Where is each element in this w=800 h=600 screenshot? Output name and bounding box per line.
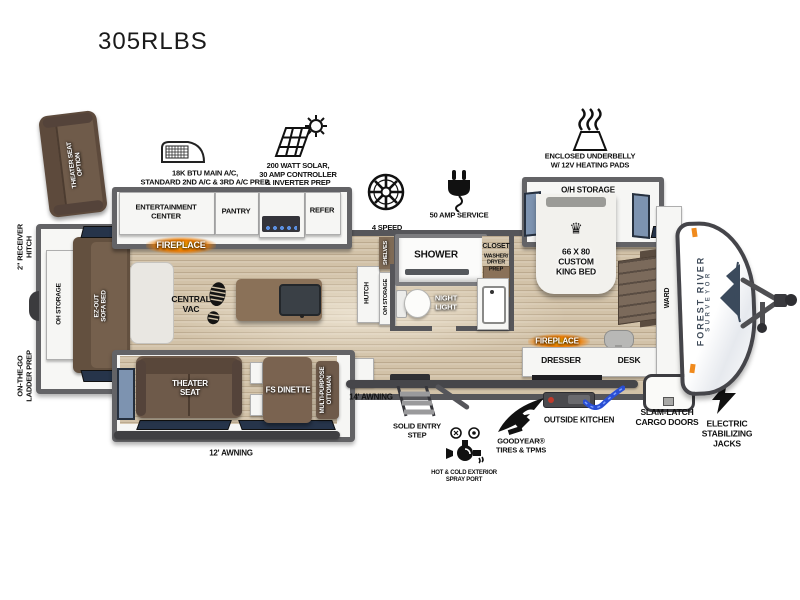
fs-dinette-label: FS DINETTE — [266, 385, 311, 394]
stab-jacks-label: ELECTRIC STABILIZING JACKS — [702, 419, 753, 448]
refer-label: REFER — [310, 207, 334, 216]
closet-sub-label: WASHER/ DRYER PREP — [484, 254, 508, 273]
floorplan-canvas: 305RLBS THEATER SEAT OPTION 18K BTU MAIN… — [0, 0, 800, 600]
night-light-label: NIGHT LIGHT — [435, 294, 457, 311]
dinette-bench-2 — [250, 394, 263, 416]
slam-latch-label: SLAM-LATCH CARGO DOORS — [636, 408, 699, 428]
main-ac-label: 18K BTU MAIN A/C, STANDARD 2ND A/C & 3RD… — [141, 169, 270, 186]
king-bed — [536, 194, 616, 294]
dinette-bench-1 — [250, 362, 263, 384]
awning-12-label: 12' AWNING — [209, 448, 253, 457]
theater-seat-back — [139, 358, 239, 374]
cooktop-knobs — [265, 226, 297, 230]
bath-wall-bottom-a — [390, 326, 432, 331]
pulled-out-bed — [130, 262, 174, 344]
rear-oh-storage-label: OH STORAGE — [55, 254, 62, 354]
cooktop — [262, 216, 300, 232]
brand-forest-river: FOREST RIVER — [695, 241, 705, 361]
dresser-label: DRESSER — [541, 356, 581, 366]
vanity-faucet — [490, 290, 494, 294]
entertainment-center-label: ENTERTAINMENT CENTER — [135, 203, 196, 220]
theater-seat-label: THEATER SEAT — [172, 379, 208, 397]
theater-seat-option-sofa: THEATER SEAT OPTION — [38, 110, 108, 218]
ottoman-label: MULTI-PURPOSE OTTOMAN — [320, 358, 334, 422]
shower-drain-strip — [405, 269, 469, 275]
theater-seat-arm-right — [232, 360, 242, 416]
crown-icon: ♛ — [569, 220, 582, 237]
slam-latch-handle — [663, 397, 674, 406]
mountain-logo — [716, 260, 742, 324]
king-bed-label: 66 X 80 CUSTOM KING BED — [556, 247, 596, 276]
awning-14-label: 14' AWNING — [349, 392, 393, 401]
ac-unit-icon — [158, 138, 208, 166]
page-title: 305RLBS — [98, 28, 208, 56]
underbelly-label: ENCLOSED UNDERBELLY W/ 12V HEATING PADS — [545, 152, 636, 169]
theater-seat-arm-left — [136, 360, 146, 416]
ez-out-sofa-bed-label: EZ-OUT SOFA BED — [94, 261, 109, 351]
awning-12-bar — [114, 431, 340, 439]
slide-window-left — [117, 368, 135, 420]
fireplace-living-label: FIREPLACE — [156, 240, 205, 250]
bed-headboard — [546, 197, 606, 207]
shelves-label: SHELVES — [383, 233, 389, 273]
brand-surveyor: SURVEYOR — [706, 241, 713, 361]
pantry-label: PANTRY — [222, 208, 251, 217]
hutch-label: HUTCH — [363, 268, 370, 318]
bath-fan-icon — [366, 172, 406, 212]
toilet-bowl — [404, 289, 431, 318]
vanity-sink — [482, 286, 506, 324]
outside-kitchen-hose — [583, 380, 625, 410]
outside-kitchen-burner — [548, 397, 554, 403]
island-sink — [279, 284, 321, 316]
solar-label: 200 WATT SOLAR, 30 AMP CONTROLLER & INVE… — [259, 162, 336, 188]
entry-step-label: SOLID ENTRY STEP — [393, 422, 441, 439]
fireplace-bed-label: FIREPLACE — [535, 336, 579, 345]
cap-marker-light-top — [691, 228, 697, 238]
brand-text-block: FOREST RIVER SURVEYOR — [695, 241, 712, 361]
shower-label: SHOWER — [414, 249, 458, 261]
ward-label: WARD — [664, 268, 672, 328]
heat-waves-icon — [566, 108, 614, 152]
desk-label: DESK — [618, 356, 641, 366]
entry-step-icon — [392, 386, 438, 418]
amp-service-label: 50 AMP SERVICE — [430, 212, 489, 221]
goodyear-wingfoot-icon — [496, 396, 546, 436]
solar-panel-icon — [266, 114, 330, 160]
island-faucet — [300, 314, 304, 318]
bedside-wardrobe — [618, 255, 660, 325]
outside-kitchen-label: OUTSIDE KITCHEN — [544, 415, 614, 424]
power-plug-icon — [444, 170, 474, 212]
mid-oh-storage-label: O/H STORAGE — [383, 269, 389, 325]
spray-port-icon — [444, 426, 486, 472]
ladder-prep-label: ON-THE-GO LADDER PREP — [16, 341, 33, 411]
bedroom-window-right — [632, 193, 650, 239]
goodyear-label: GOODYEAR® TIRES & TPMS — [496, 437, 546, 454]
spare-tire-bump — [29, 291, 39, 321]
receiver-hitch-label: 2" RECEIVER HITCH — [16, 212, 33, 282]
spray-port-label: HOT & COLD EXTERIOR SPRAY PORT — [431, 470, 497, 484]
slide-window-bottom-1 — [136, 420, 232, 430]
closet-label: CLOSET — [482, 243, 509, 251]
hitch-assembly — [740, 270, 798, 336]
